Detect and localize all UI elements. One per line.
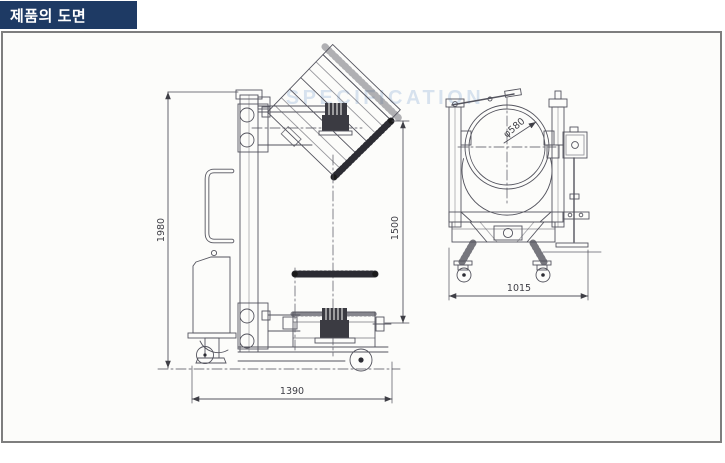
lowered-chain-band <box>292 271 378 277</box>
dim-overall-height: 1980 <box>156 92 238 368</box>
frame-posts <box>446 91 567 227</box>
front-view: φ580 <box>446 89 601 300</box>
lower-carriage <box>238 303 300 349</box>
drawing-linework: 1980 1500 1390 <box>156 42 601 403</box>
dim-frame-width: 1015 <box>449 248 588 300</box>
drum-front <box>458 98 559 215</box>
jack-pedal <box>196 338 228 364</box>
handle <box>207 171 232 241</box>
dim-label-1500: 1500 <box>390 216 401 240</box>
dim-label-1390: 1390 <box>280 386 304 397</box>
dim-label-1980: 1980 <box>156 218 167 242</box>
base-frame <box>158 347 400 371</box>
frame-base <box>449 212 563 242</box>
technical-drawing: SPECIFICATION <box>0 0 725 463</box>
cabinet <box>188 250 236 338</box>
dim-base-length: 1390 <box>192 362 392 403</box>
dim-label-1015: 1015 <box>507 283 531 294</box>
dim-lift-height: 1500 <box>385 121 409 323</box>
legs-casters <box>454 243 551 282</box>
